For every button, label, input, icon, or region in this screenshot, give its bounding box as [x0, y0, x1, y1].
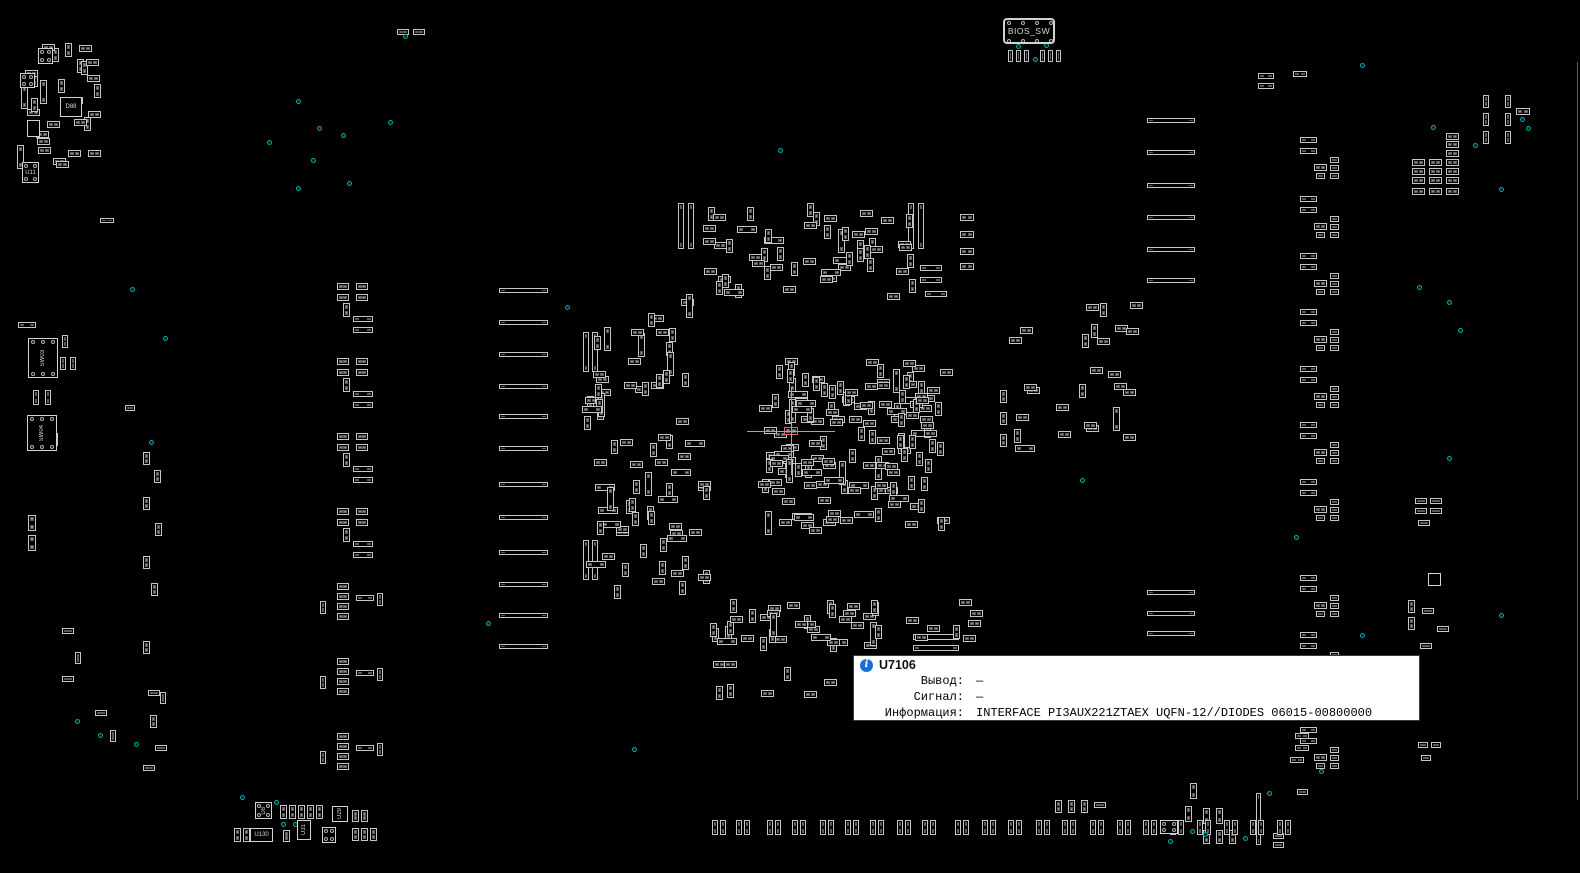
component[interactable] [640, 544, 647, 558]
component[interactable] [916, 452, 923, 466]
component[interactable] [953, 625, 960, 639]
component[interactable] [1330, 224, 1339, 230]
component[interactable] [337, 294, 349, 301]
component[interactable] [899, 390, 906, 404]
component[interactable] [337, 658, 349, 665]
component[interactable] [875, 508, 882, 522]
component[interactable] [849, 449, 856, 463]
component[interactable] [28, 535, 36, 551]
component[interactable] [1300, 643, 1317, 649]
component[interactable] [1415, 498, 1427, 504]
component[interactable] [885, 463, 898, 470]
component[interactable] [1300, 479, 1317, 485]
component[interactable] [583, 540, 589, 580]
component[interactable] [584, 416, 591, 430]
component[interactable] [343, 378, 350, 392]
component[interactable] [795, 621, 808, 628]
component[interactable] [871, 600, 878, 614]
component[interactable] [1418, 742, 1428, 748]
component[interactable] [62, 676, 74, 682]
test-point[interactable] [281, 822, 286, 827]
component[interactable] [824, 215, 837, 222]
component[interactable] [1437, 626, 1449, 632]
component[interactable] [906, 412, 919, 419]
component[interactable] [717, 638, 737, 645]
component[interactable] [804, 691, 817, 698]
component[interactable] [28, 515, 36, 531]
component[interactable] [1330, 515, 1339, 521]
component[interactable] [1178, 820, 1184, 835]
component[interactable] [150, 715, 157, 728]
component[interactable] [863, 420, 876, 427]
component[interactable] [877, 382, 890, 389]
component[interactable] [846, 252, 853, 266]
component[interactable] [1014, 429, 1021, 443]
component[interactable] [352, 828, 359, 841]
component[interactable] [703, 238, 716, 245]
component[interactable] [791, 262, 798, 276]
component[interactable] [927, 387, 940, 394]
component[interactable] [79, 45, 92, 52]
component[interactable] [820, 820, 826, 835]
component[interactable] [1412, 188, 1425, 195]
component[interactable] [775, 820, 781, 835]
component[interactable] [1483, 113, 1489, 126]
test-point[interactable] [632, 747, 637, 752]
component[interactable] [722, 274, 729, 288]
component[interactable] [1068, 800, 1075, 813]
component[interactable] [337, 508, 349, 515]
board-canvas[interactable]: i U7106 Вывод: — Сигнал: — Информация: I… [0, 0, 1580, 873]
component[interactable] [65, 43, 72, 57]
component[interactable] [829, 604, 836, 618]
component[interactable] [736, 820, 742, 835]
component[interactable] [1300, 148, 1317, 154]
component[interactable] [922, 820, 928, 835]
component[interactable] [1330, 450, 1339, 456]
component[interactable] [37, 138, 50, 145]
chip-unlabeled[interactable] [38, 48, 53, 64]
component[interactable] [1084, 422, 1097, 429]
component[interactable] [741, 635, 754, 642]
component[interactable] [920, 277, 942, 283]
component[interactable] [648, 511, 655, 525]
component[interactable] [652, 578, 665, 585]
component[interactable] [1147, 118, 1195, 123]
component[interactable] [56, 161, 69, 168]
component[interactable] [1300, 366, 1317, 372]
component[interactable] [499, 414, 548, 419]
component[interactable] [888, 501, 901, 508]
component[interactable] [903, 360, 916, 367]
component[interactable] [830, 419, 843, 426]
component[interactable] [666, 483, 673, 497]
component[interactable] [1418, 520, 1430, 526]
component[interactable] [1190, 783, 1197, 799]
component[interactable] [901, 448, 908, 462]
component[interactable] [154, 470, 161, 483]
component[interactable] [151, 583, 158, 596]
component[interactable] [1082, 334, 1089, 348]
component[interactable] [1197, 820, 1203, 835]
component[interactable] [280, 805, 287, 819]
component[interactable] [1055, 800, 1062, 813]
component[interactable] [982, 820, 988, 835]
component[interactable] [68, 150, 81, 157]
component[interactable] [918, 499, 925, 513]
test-point[interactable] [134, 742, 139, 747]
component[interactable] [1429, 177, 1442, 184]
component[interactable] [970, 610, 983, 617]
component[interactable] [1117, 820, 1123, 835]
component[interactable] [852, 231, 865, 238]
component[interactable] [1314, 754, 1327, 761]
component[interactable] [1415, 508, 1427, 514]
component[interactable] [1147, 247, 1195, 252]
component[interactable] [1446, 150, 1459, 157]
component[interactable] [1020, 327, 1033, 334]
component[interactable] [320, 601, 326, 614]
component[interactable] [356, 444, 368, 451]
component[interactable] [918, 203, 924, 249]
test-point[interactable] [403, 34, 408, 39]
component[interactable] [1300, 253, 1317, 259]
component[interactable] [1330, 394, 1339, 400]
component[interactable] [1056, 404, 1069, 411]
component[interactable] [1330, 747, 1339, 753]
component[interactable] [875, 482, 888, 489]
component[interactable] [795, 463, 802, 477]
component[interactable] [908, 476, 915, 490]
component[interactable] [1505, 95, 1511, 108]
component[interactable] [1008, 820, 1014, 835]
component[interactable] [31, 98, 38, 112]
test-point[interactable] [1294, 535, 1299, 540]
component[interactable] [826, 516, 839, 523]
component[interactable] [356, 283, 368, 290]
component[interactable] [352, 810, 359, 822]
component[interactable] [1126, 328, 1139, 335]
component[interactable] [1258, 73, 1274, 79]
component[interactable] [1100, 303, 1107, 317]
component[interactable] [724, 661, 737, 668]
component[interactable] [877, 364, 884, 378]
test-point[interactable] [1033, 57, 1038, 62]
component[interactable] [676, 418, 689, 425]
component[interactable] [353, 477, 373, 483]
component[interactable] [1094, 802, 1106, 808]
component[interactable] [1314, 393, 1327, 400]
component[interactable] [924, 430, 937, 437]
chip-D88[interactable]: D88 [60, 97, 82, 117]
component[interactable] [1300, 490, 1317, 496]
component[interactable] [1015, 445, 1035, 452]
component[interactable] [593, 371, 606, 378]
component[interactable] [499, 482, 548, 487]
component[interactable] [337, 444, 349, 451]
component[interactable] [21, 85, 28, 109]
component[interactable] [499, 446, 548, 451]
test-point[interactable] [296, 186, 301, 191]
component[interactable] [1446, 159, 1459, 166]
component[interactable] [33, 390, 39, 405]
component[interactable] [307, 805, 314, 819]
component[interactable] [1314, 164, 1327, 171]
component[interactable] [1446, 141, 1459, 148]
component[interactable] [887, 469, 900, 476]
component[interactable] [658, 434, 671, 441]
component[interactable] [594, 459, 607, 466]
component[interactable] [160, 692, 166, 704]
component[interactable] [916, 397, 929, 404]
component[interactable] [1330, 289, 1339, 295]
component[interactable] [663, 370, 670, 384]
component[interactable] [86, 59, 99, 66]
component[interactable] [40, 80, 47, 104]
component[interactable] [155, 745, 167, 751]
component[interactable] [582, 406, 602, 413]
component[interactable] [1330, 595, 1339, 601]
component[interactable] [1256, 793, 1261, 845]
component[interactable] [802, 373, 809, 387]
component[interactable] [822, 458, 835, 465]
component[interactable] [592, 540, 598, 580]
component[interactable] [907, 254, 914, 268]
component[interactable] [356, 595, 374, 601]
component[interactable] [353, 391, 373, 397]
component[interactable] [890, 482, 897, 496]
component[interactable] [1408, 600, 1415, 613]
component[interactable] [1300, 207, 1317, 213]
chip-unlabeled[interactable] [20, 73, 35, 88]
component[interactable] [499, 644, 548, 649]
component[interactable] [353, 402, 373, 408]
component[interactable] [1300, 738, 1317, 744]
component[interactable] [1297, 789, 1308, 795]
component[interactable] [860, 402, 873, 409]
component[interactable] [803, 258, 816, 265]
component[interactable] [499, 550, 548, 555]
component[interactable] [353, 552, 373, 558]
component[interactable] [854, 511, 874, 518]
component[interactable] [678, 453, 691, 460]
component[interactable] [787, 602, 800, 609]
test-point[interactable] [1319, 769, 1324, 774]
component[interactable] [821, 383, 828, 397]
component[interactable] [1108, 371, 1121, 378]
component[interactable] [1330, 173, 1339, 179]
component[interactable] [1147, 183, 1195, 188]
component[interactable] [818, 497, 831, 504]
component[interactable] [800, 820, 806, 835]
component[interactable] [95, 710, 107, 716]
component[interactable] [927, 625, 940, 632]
component[interactable] [896, 268, 909, 275]
component[interactable] [772, 394, 779, 408]
component[interactable] [720, 820, 726, 835]
component[interactable] [583, 332, 589, 372]
component[interactable] [767, 820, 773, 835]
component[interactable] [1330, 402, 1339, 408]
component[interactable] [671, 469, 691, 476]
component[interactable] [656, 374, 663, 388]
component[interactable] [847, 603, 860, 610]
component[interactable] [586, 561, 606, 568]
component[interactable] [353, 327, 373, 333]
component[interactable] [1429, 168, 1442, 175]
component[interactable] [632, 512, 639, 526]
component[interactable] [614, 585, 621, 599]
component[interactable] [1300, 377, 1317, 383]
component[interactable] [804, 222, 817, 229]
component[interactable] [298, 805, 305, 819]
component[interactable] [58, 79, 65, 93]
test-point[interactable] [1360, 633, 1365, 638]
component[interactable] [820, 276, 833, 283]
test-point[interactable] [267, 140, 272, 145]
component[interactable] [726, 239, 733, 253]
component[interactable] [243, 828, 250, 842]
component[interactable] [234, 828, 241, 842]
component[interactable] [1314, 602, 1327, 609]
component[interactable] [343, 453, 350, 467]
component[interactable] [712, 820, 718, 835]
component[interactable] [143, 556, 150, 569]
chip-BIOS_SW[interactable]: BIOS_SW [1003, 18, 1055, 44]
component[interactable] [679, 581, 686, 595]
component[interactable] [320, 676, 326, 689]
component[interactable] [813, 377, 820, 391]
component[interactable] [1300, 433, 1317, 439]
component[interactable] [337, 283, 349, 290]
component[interactable] [787, 369, 794, 383]
component[interactable] [1330, 329, 1339, 335]
component[interactable] [1316, 611, 1325, 617]
component[interactable] [38, 147, 51, 154]
component[interactable] [1412, 168, 1425, 175]
component[interactable] [1330, 337, 1339, 343]
component[interactable] [783, 286, 796, 293]
component[interactable] [727, 621, 734, 635]
component[interactable] [829, 385, 836, 399]
component[interactable] [792, 406, 812, 413]
component[interactable] [845, 820, 851, 835]
component[interactable] [353, 466, 373, 472]
component[interactable] [730, 599, 737, 613]
component[interactable] [1505, 131, 1511, 144]
component[interactable] [824, 679, 837, 686]
component[interactable] [770, 613, 777, 637]
component[interactable] [704, 268, 717, 275]
component[interactable] [143, 765, 155, 771]
component[interactable] [1446, 133, 1459, 140]
component[interactable] [811, 634, 831, 641]
component[interactable] [1412, 159, 1425, 166]
component[interactable] [155, 523, 162, 536]
component[interactable] [1316, 232, 1325, 238]
component[interactable] [1295, 745, 1309, 751]
test-point[interactable] [486, 621, 491, 626]
component[interactable] [667, 535, 687, 542]
component[interactable] [353, 316, 373, 322]
component[interactable] [337, 763, 349, 770]
component[interactable] [1300, 575, 1317, 581]
component[interactable] [659, 561, 666, 575]
test-point[interactable] [75, 719, 80, 724]
component[interactable] [337, 369, 349, 376]
component[interactable] [821, 269, 841, 276]
component[interactable] [1300, 137, 1317, 143]
component[interactable] [1412, 177, 1425, 184]
component[interactable] [870, 820, 876, 835]
component[interactable] [1290, 757, 1304, 763]
component[interactable] [602, 553, 615, 560]
component[interactable] [1431, 742, 1441, 748]
component[interactable] [839, 616, 852, 623]
component[interactable] [1000, 390, 1007, 403]
component[interactable] [1300, 586, 1317, 592]
component[interactable] [776, 365, 783, 379]
component[interactable] [337, 743, 349, 750]
component[interactable] [337, 753, 349, 760]
component[interactable] [935, 402, 942, 416]
component[interactable] [337, 733, 349, 740]
component[interactable] [851, 622, 864, 629]
component[interactable] [622, 563, 629, 577]
component[interactable] [1036, 820, 1042, 835]
component[interactable] [353, 541, 373, 547]
component[interactable] [642, 382, 649, 396]
component[interactable] [897, 820, 903, 835]
component[interactable] [1300, 320, 1317, 326]
chip-unlabeled[interactable] [27, 120, 40, 137]
component[interactable] [840, 517, 853, 524]
component[interactable] [761, 690, 774, 697]
component[interactable] [853, 820, 859, 835]
component[interactable] [765, 229, 772, 243]
component[interactable] [289, 805, 296, 819]
component[interactable] [828, 820, 834, 835]
component[interactable] [887, 293, 900, 300]
component[interactable] [845, 389, 858, 396]
component[interactable] [1316, 345, 1325, 351]
component[interactable] [607, 487, 614, 511]
component[interactable] [1058, 431, 1071, 438]
test-point[interactable] [1499, 613, 1504, 618]
test-point[interactable] [130, 287, 135, 292]
component[interactable] [337, 583, 349, 590]
component[interactable] [968, 620, 981, 627]
component[interactable] [1330, 232, 1339, 238]
component[interactable] [770, 264, 783, 271]
component[interactable] [143, 641, 150, 654]
component[interactable] [343, 303, 350, 317]
component[interactable] [1086, 304, 1099, 311]
component[interactable] [849, 416, 862, 423]
component[interactable] [377, 593, 383, 606]
component[interactable] [792, 820, 798, 835]
component[interactable] [1090, 820, 1096, 835]
component[interactable] [1483, 131, 1489, 144]
component[interactable] [1216, 830, 1223, 844]
component[interactable] [356, 519, 368, 526]
test-point[interactable] [1431, 125, 1436, 130]
component[interactable] [1430, 498, 1442, 504]
component[interactable] [716, 281, 723, 295]
component[interactable] [906, 617, 919, 624]
component[interactable] [601, 521, 621, 528]
component[interactable] [1316, 173, 1325, 179]
